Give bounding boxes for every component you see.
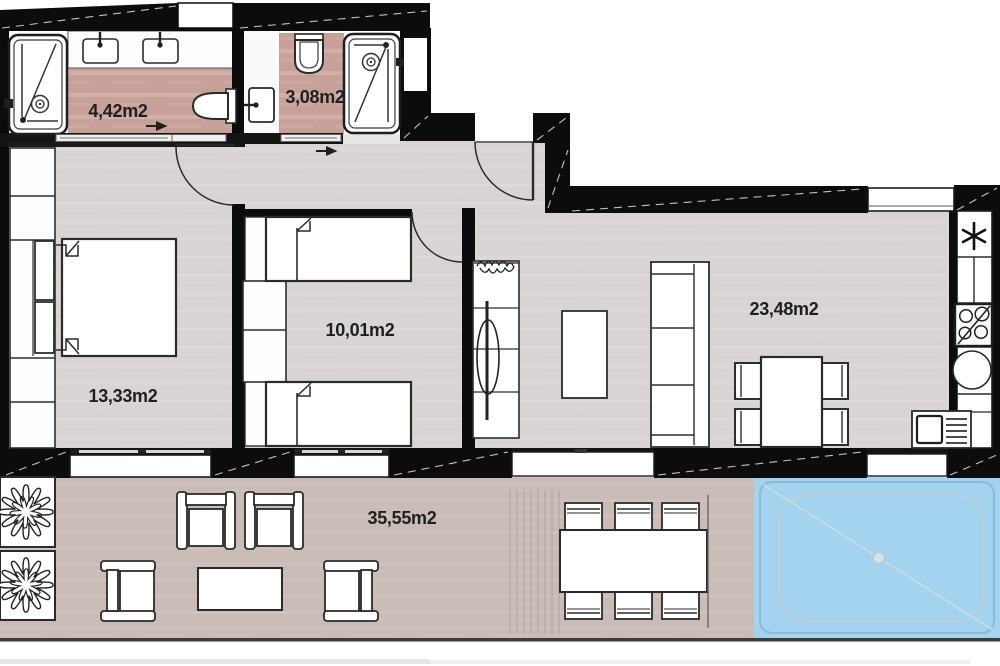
svg-text:3,08m2: 3,08m2	[285, 87, 345, 107]
svg-text:35,55m2: 35,55m2	[368, 508, 437, 528]
svg-text:4,42m2: 4,42m2	[88, 101, 148, 121]
svg-text:10,01m2: 10,01m2	[326, 320, 395, 340]
svg-text:13,33m2: 13,33m2	[89, 386, 158, 406]
svg-text:23,48m2: 23,48m2	[750, 299, 819, 319]
